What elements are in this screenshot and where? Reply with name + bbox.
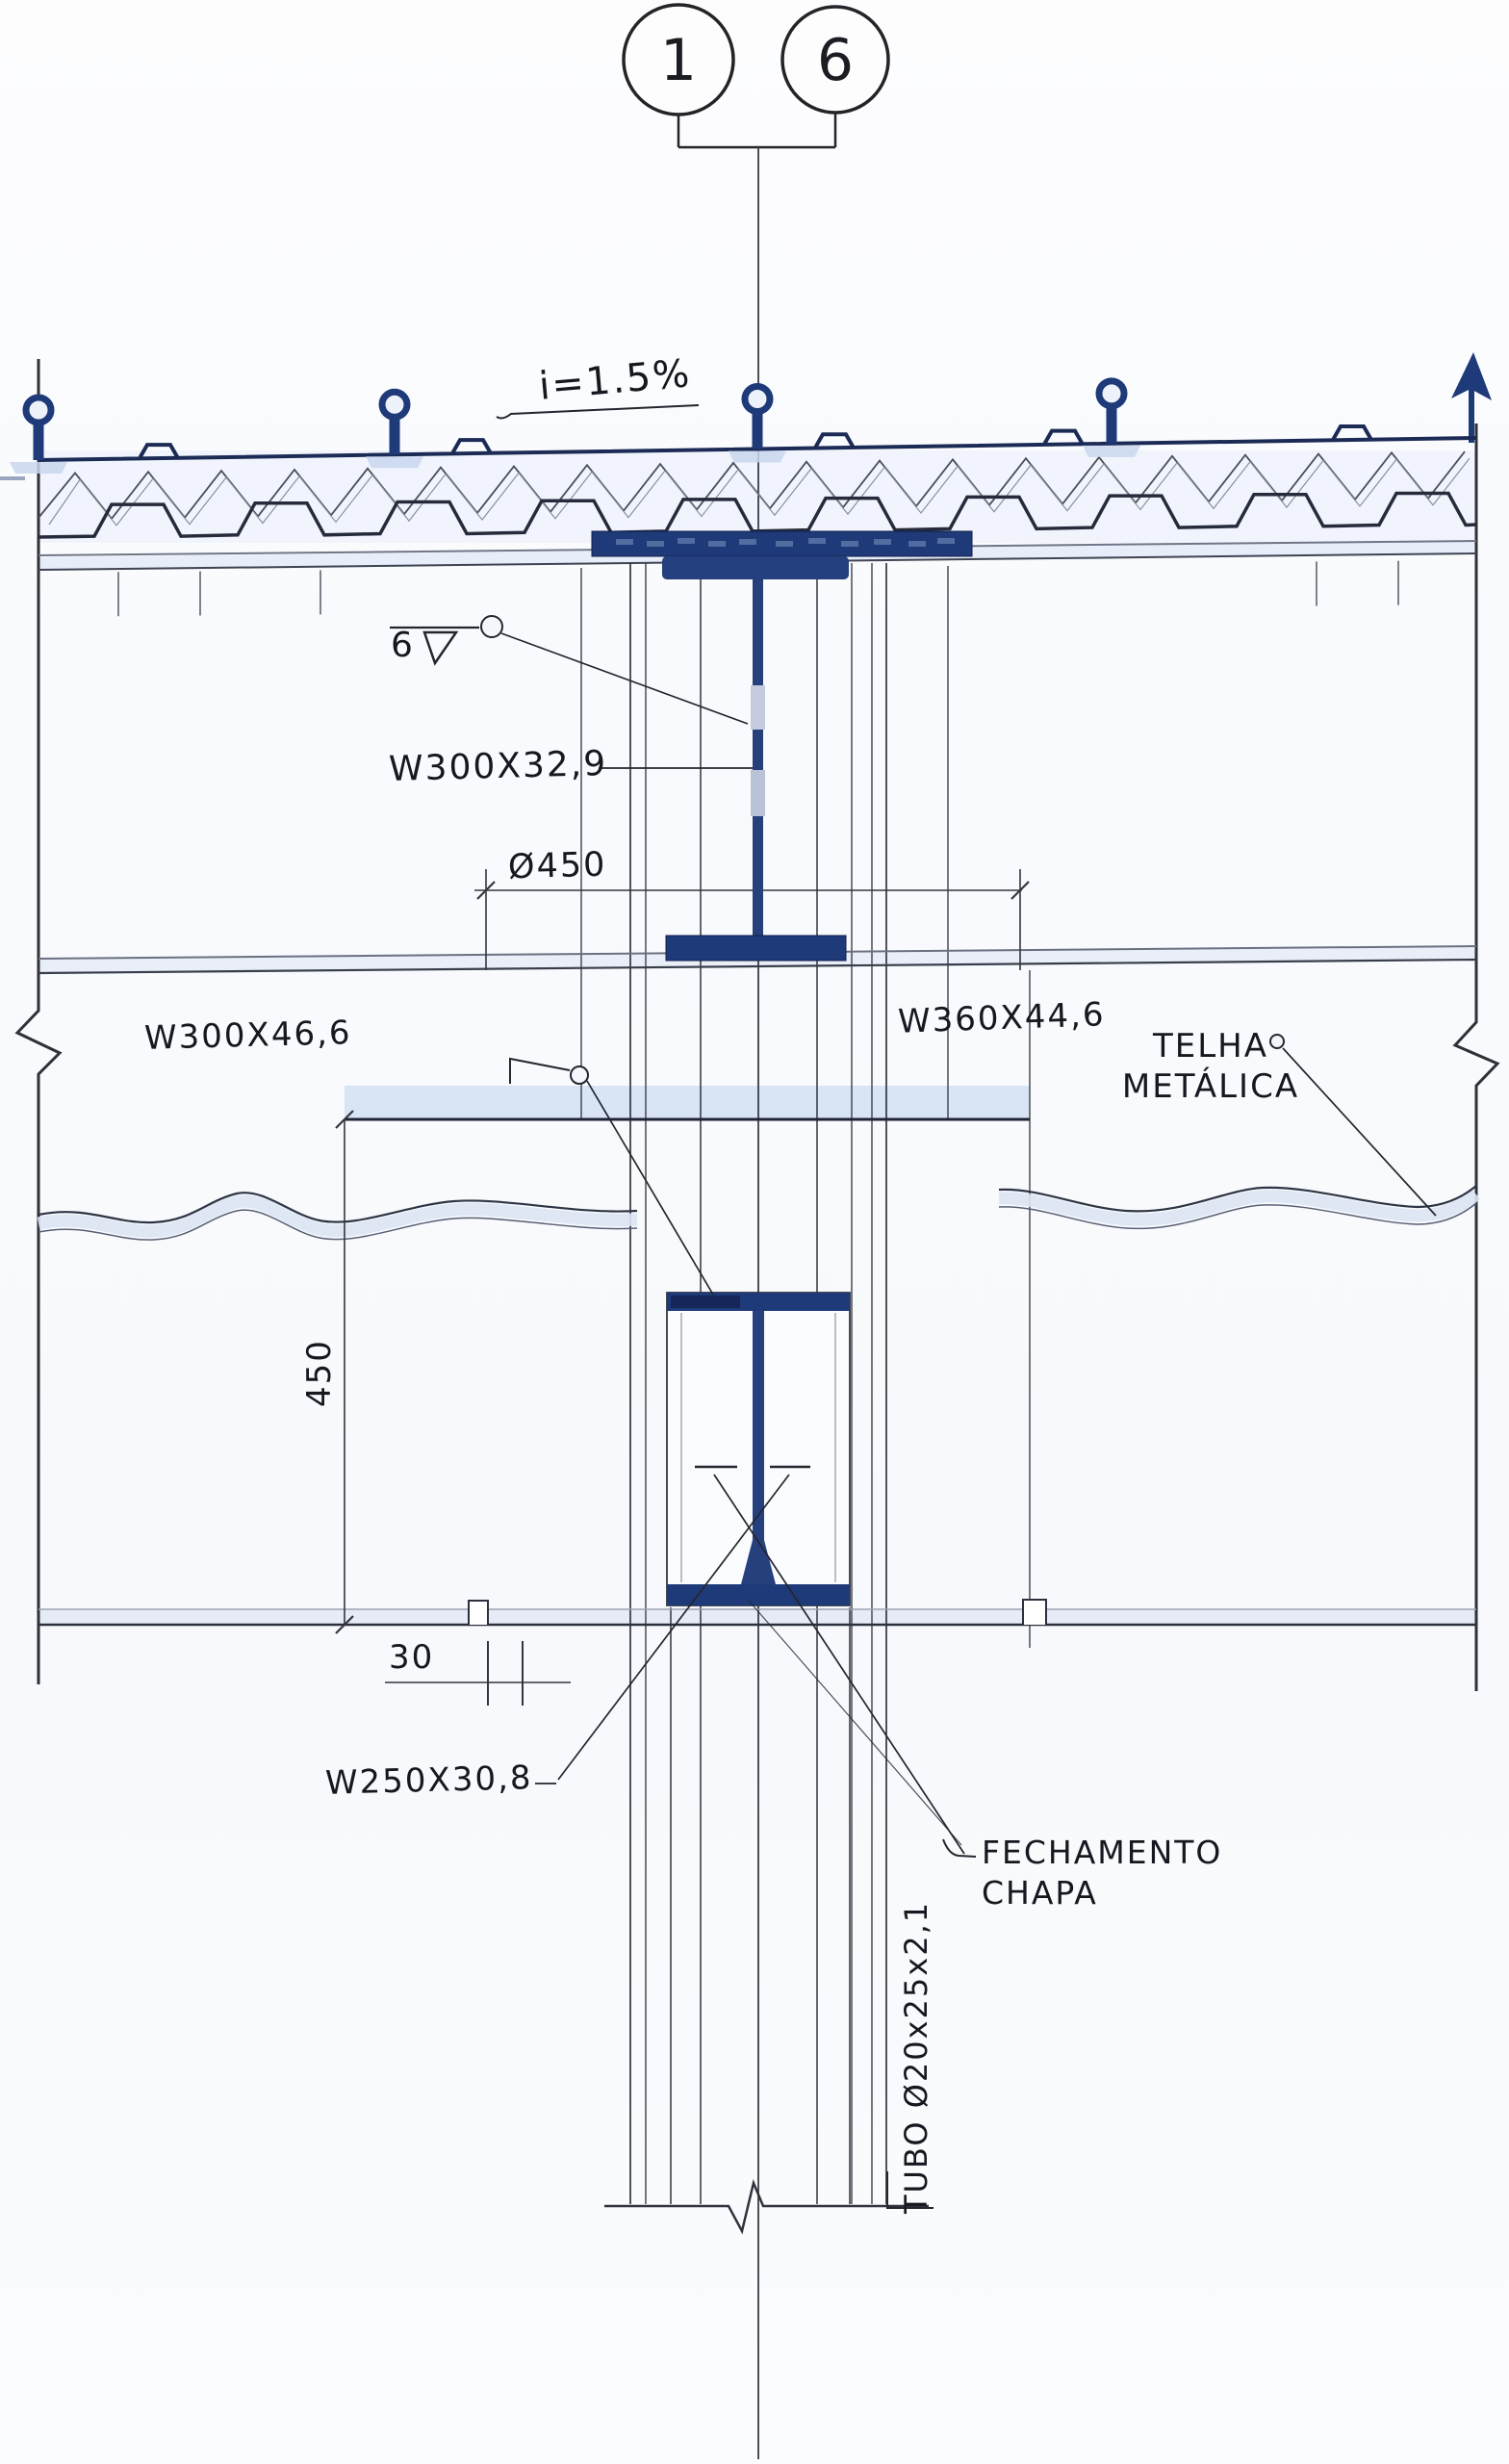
top-beam-web-splice <box>751 685 765 730</box>
telha-wave-left <box>38 1193 637 1240</box>
weld-size-label: 6 <box>391 626 415 665</box>
top-beam-web <box>753 579 763 937</box>
roof-bolt-icon <box>1083 381 1140 457</box>
roof-sheet-label-line1: TELHA <box>1086 1026 1336 1066</box>
right-border-breakline <box>1455 423 1497 1691</box>
beam-left-label: W300X46,6 <box>144 1014 352 1058</box>
closure-tab-right <box>1023 1600 1046 1625</box>
closure-label-line1: FECHAMENTO <box>982 1833 1222 1873</box>
flange-circle-icon <box>571 1066 588 1084</box>
wall-band-wash <box>345 1086 1030 1118</box>
roof-bolt-icon <box>366 392 423 468</box>
beam-lower-label: W250X30,8 <box>325 1758 533 1803</box>
grid-bubble-stem <box>678 114 835 147</box>
roof-bolt-icon <box>729 387 786 463</box>
top-beam-web-splice-2 <box>751 770 765 816</box>
closure-leader-b <box>749 1601 961 1845</box>
drawing-canvas <box>0 0 1509 2464</box>
closure-label-line2: CHAPA <box>982 1873 1222 1913</box>
lower-beam <box>667 1293 850 1605</box>
roof-wash <box>38 450 1476 543</box>
top-beam-cap-plate <box>662 556 849 579</box>
grid-bubble-1-label: 1 <box>650 27 707 94</box>
tube-label: TUBO Ø20x25x2,1 <box>898 1901 934 2214</box>
weld-circle-icon <box>481 616 502 637</box>
slope-underline <box>497 405 699 418</box>
beam-top-label: W300X32,9 <box>389 744 608 789</box>
roof-bolt-icon <box>10 398 67 474</box>
grid-bubble-6-label: 6 <box>806 27 864 94</box>
telha-wave-right <box>999 1186 1476 1228</box>
closure-tab-left <box>469 1601 488 1625</box>
closure-label: FECHAMENTO CHAPA <box>982 1833 1222 1913</box>
top-beam-bottom-flange <box>666 936 846 961</box>
weld-triangle-icon <box>424 632 456 663</box>
dim-gap-label: 30 <box>389 1638 434 1677</box>
beam-right-label: W360X44,6 <box>897 995 1106 1040</box>
roof-sheet-label-line2: METÁLICA <box>1086 1066 1336 1107</box>
lower-beam-weld-texture <box>671 1296 740 1308</box>
dim-width-label: Ø450 <box>507 846 606 887</box>
roof-sheet-label: TELHA METÁLICA <box>1086 1026 1336 1107</box>
weld-leader <box>501 633 748 724</box>
flange-hook-symbol <box>510 1059 570 1084</box>
closure-bracket <box>943 1839 976 1857</box>
dim-height-label: 450 <box>300 1339 339 1407</box>
base-band-wash <box>38 1610 1476 1624</box>
top-beam <box>592 531 972 961</box>
lower-beam-bottom-flange <box>667 1584 850 1605</box>
bottom-break-line <box>604 2183 929 2231</box>
structural-detail-drawing: 1 6 i=1.5% 6 W300X32,9 Ø450 W300X46,6 W3… <box>0 0 1509 2464</box>
